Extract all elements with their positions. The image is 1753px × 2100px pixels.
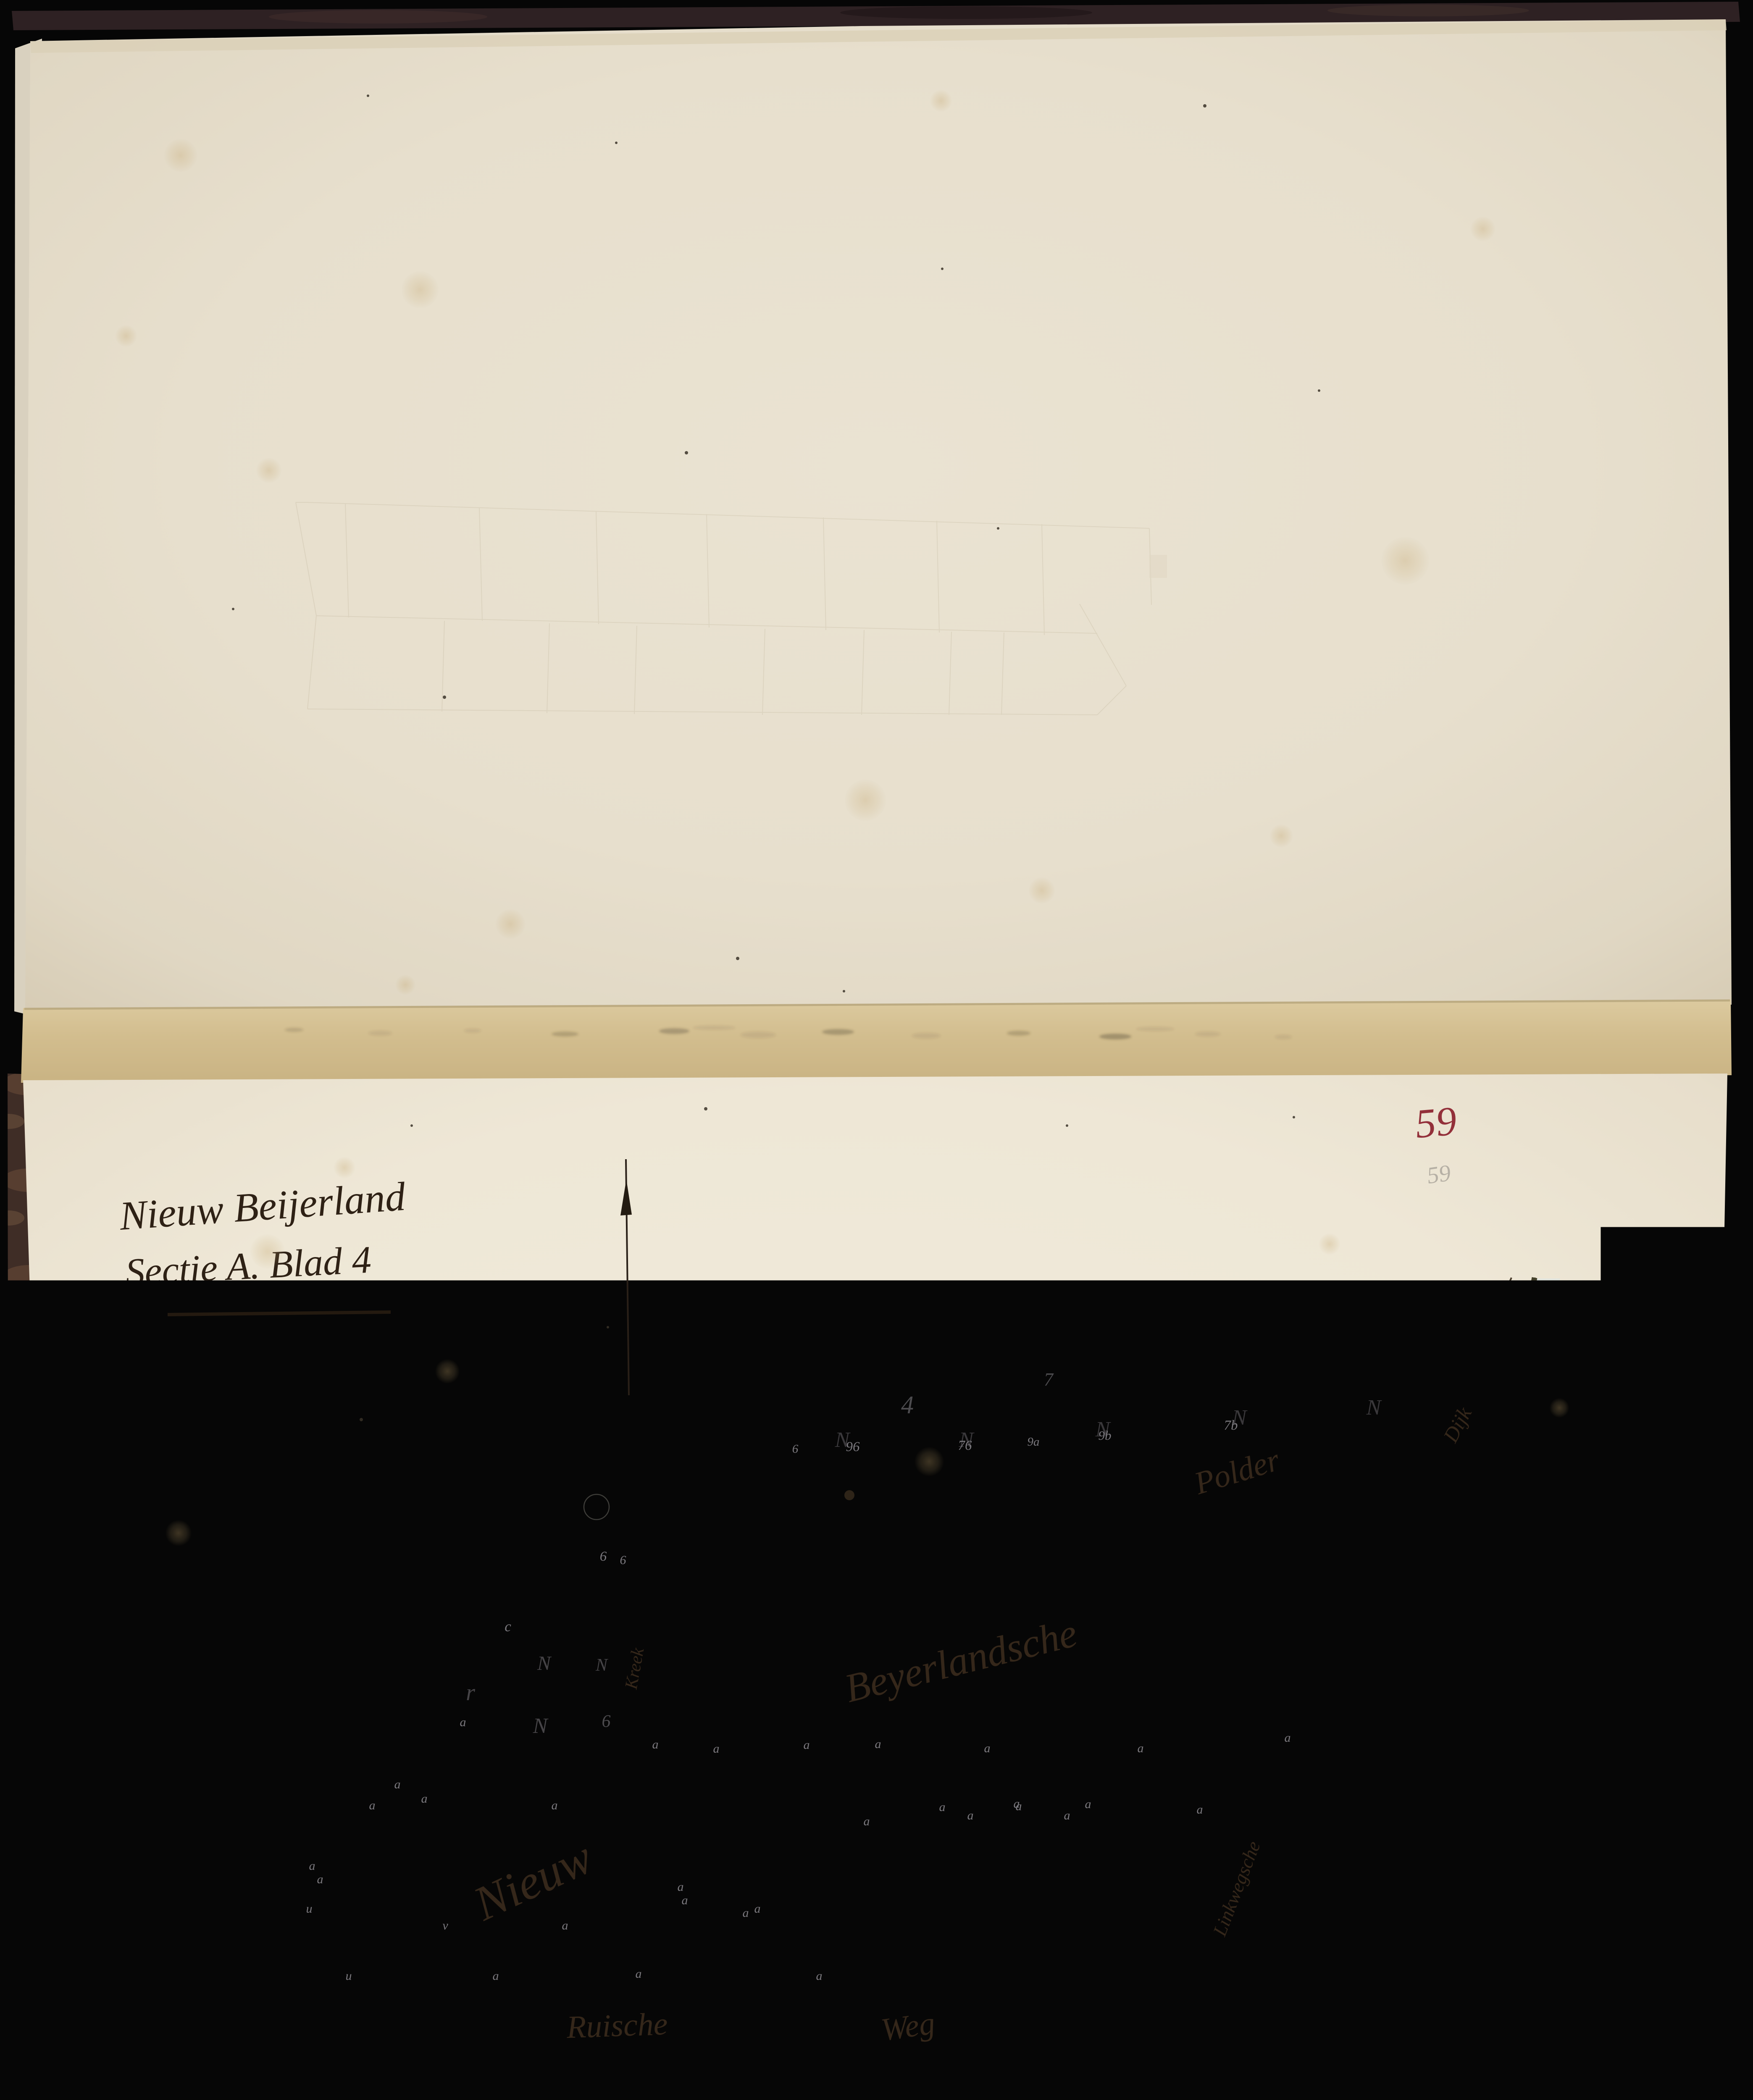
svg-text:r: r [466, 1680, 475, 1706]
svg-text:a: a [421, 1792, 428, 1806]
svg-text:6: 6 [620, 1553, 626, 1567]
svg-text:a: a [369, 1798, 376, 1812]
svg-text:729: 729 [1130, 1711, 1149, 1725]
svg-text:707: 707 [612, 1589, 630, 1602]
svg-text:c: c [505, 1618, 511, 1635]
svg-text:711: 711 [561, 1716, 579, 1730]
svg-text:6: 6 [600, 1549, 607, 1564]
svg-text:683: 683 [594, 1963, 618, 1981]
svg-text:a: a [967, 1809, 974, 1822]
svg-text:689: 689 [653, 1869, 674, 1884]
svg-text:a: a [682, 1893, 688, 1907]
svg-text:u: u [346, 1969, 352, 1983]
svg-text:a: a [652, 1738, 659, 1751]
svg-text:708.: 708. [576, 1571, 595, 1583]
svg-text:a: a [1085, 1797, 1091, 1811]
svg-text:N: N [1232, 1406, 1248, 1430]
svg-text:9a: 9a [1028, 1435, 1040, 1449]
svg-text:4: 4 [901, 1391, 914, 1419]
svg-text:a: a [394, 1777, 401, 1791]
svg-text:a: a [875, 1737, 881, 1751]
svg-text:N: N [533, 1714, 549, 1738]
svg-text:754: 754 [770, 1425, 788, 1438]
svg-text:686: 686 [277, 1920, 300, 1937]
svg-text:59: 59 [1425, 1160, 1452, 1189]
svg-text:682: 682 [770, 1963, 794, 1981]
svg-text:700: 700 [350, 1765, 365, 1776]
svg-text:Ruische: Ruische [565, 2006, 668, 2045]
svg-text:59: 59 [1414, 1098, 1459, 1147]
svg-text:749: 749 [1217, 1390, 1236, 1404]
svg-text:N: N [1366, 1396, 1382, 1420]
svg-text:701: 701 [435, 1716, 454, 1730]
svg-text:a: a [864, 1814, 870, 1828]
svg-text:a: a [754, 1902, 761, 1916]
svg-text:v: v [442, 1919, 448, 1932]
svg-text:752: 752 [945, 1412, 964, 1426]
svg-text:a: a [939, 1800, 946, 1814]
svg-text:55: 55 [1636, 2045, 1685, 2098]
svg-text:690: 690 [738, 1882, 760, 1898]
svg-text:b: b [1390, 1406, 1398, 1421]
svg-text:a: a [1197, 1803, 1203, 1816]
svg-text:6: 6 [792, 1442, 799, 1456]
svg-text:N: N [835, 1428, 851, 1452]
svg-text:a: a [552, 1798, 558, 1812]
svg-text:753: 753 [837, 1411, 856, 1425]
svg-text:N: N [1095, 1417, 1112, 1441]
svg-text:a: a [493, 1969, 499, 1983]
svg-text:a: a [309, 1859, 315, 1873]
svg-text:696: 696 [328, 1856, 343, 1866]
svg-text:a: a [636, 1967, 642, 1981]
svg-text:a: a [317, 1872, 323, 1886]
svg-text:7: 7 [1044, 1369, 1054, 1390]
svg-text:723: 723 [932, 1834, 950, 1847]
svg-text:6: 6 [602, 1712, 611, 1731]
svg-text:695: 695 [371, 1826, 390, 1840]
svg-text:694a: 694a [369, 1779, 394, 1793]
svg-text:Weg: Weg [879, 2005, 937, 2048]
svg-text:a: a [678, 1880, 684, 1894]
svg-text:703: 703 [544, 1550, 560, 1562]
svg-text:710: 710 [591, 1630, 610, 1643]
svg-text:a: a [562, 1919, 568, 1932]
svg-text:697: 697 [290, 1883, 310, 1897]
svg-text:702: 702 [524, 1622, 543, 1636]
svg-text:a: a [743, 1906, 749, 1920]
svg-text:730: 730 [1277, 1702, 1296, 1716]
svg-text:726: 726 [704, 1719, 723, 1732]
svg-text:693: 693 [464, 1821, 483, 1835]
svg-text:a: a [816, 1969, 823, 1983]
svg-text:a: a [1138, 1741, 1144, 1755]
svg-text:722: 722 [1016, 1819, 1035, 1833]
svg-text:721: 721 [1071, 1781, 1089, 1794]
svg-text:692: 692 [549, 1822, 568, 1836]
svg-text:N: N [595, 1656, 608, 1675]
svg-text:687: 687 [386, 1915, 411, 1933]
svg-text:688: 688 [529, 1911, 552, 1927]
svg-text:685: 685 [305, 1965, 329, 1983]
svg-text:a: a [460, 1715, 466, 1729]
svg-text:705: 705 [552, 1533, 568, 1544]
svg-text:a: a [1285, 1731, 1291, 1745]
svg-text:684: 684 [449, 1964, 473, 1982]
svg-text:a: a [1014, 1797, 1020, 1811]
svg-text:a: a [984, 1741, 991, 1755]
svg-text:N: N [537, 1652, 552, 1675]
svg-text:a: a [804, 1738, 810, 1752]
svg-text:u: u [306, 1902, 313, 1916]
svg-text:728: 728 [977, 1711, 996, 1725]
svg-text:706: 706 [592, 1532, 611, 1546]
svg-text:725: 725 [652, 1720, 668, 1731]
svg-text:N: N [959, 1428, 975, 1452]
svg-text:a: a [713, 1742, 720, 1756]
svg-text:750: 750 [1089, 1402, 1108, 1416]
svg-text:698: 698 [293, 1854, 311, 1867]
svg-text:a: a [1064, 1809, 1070, 1822]
svg-text:727: 727 [867, 1711, 887, 1725]
svg-text:724: 724 [830, 1813, 849, 1827]
svg-text:751: 751 [1020, 1406, 1038, 1419]
